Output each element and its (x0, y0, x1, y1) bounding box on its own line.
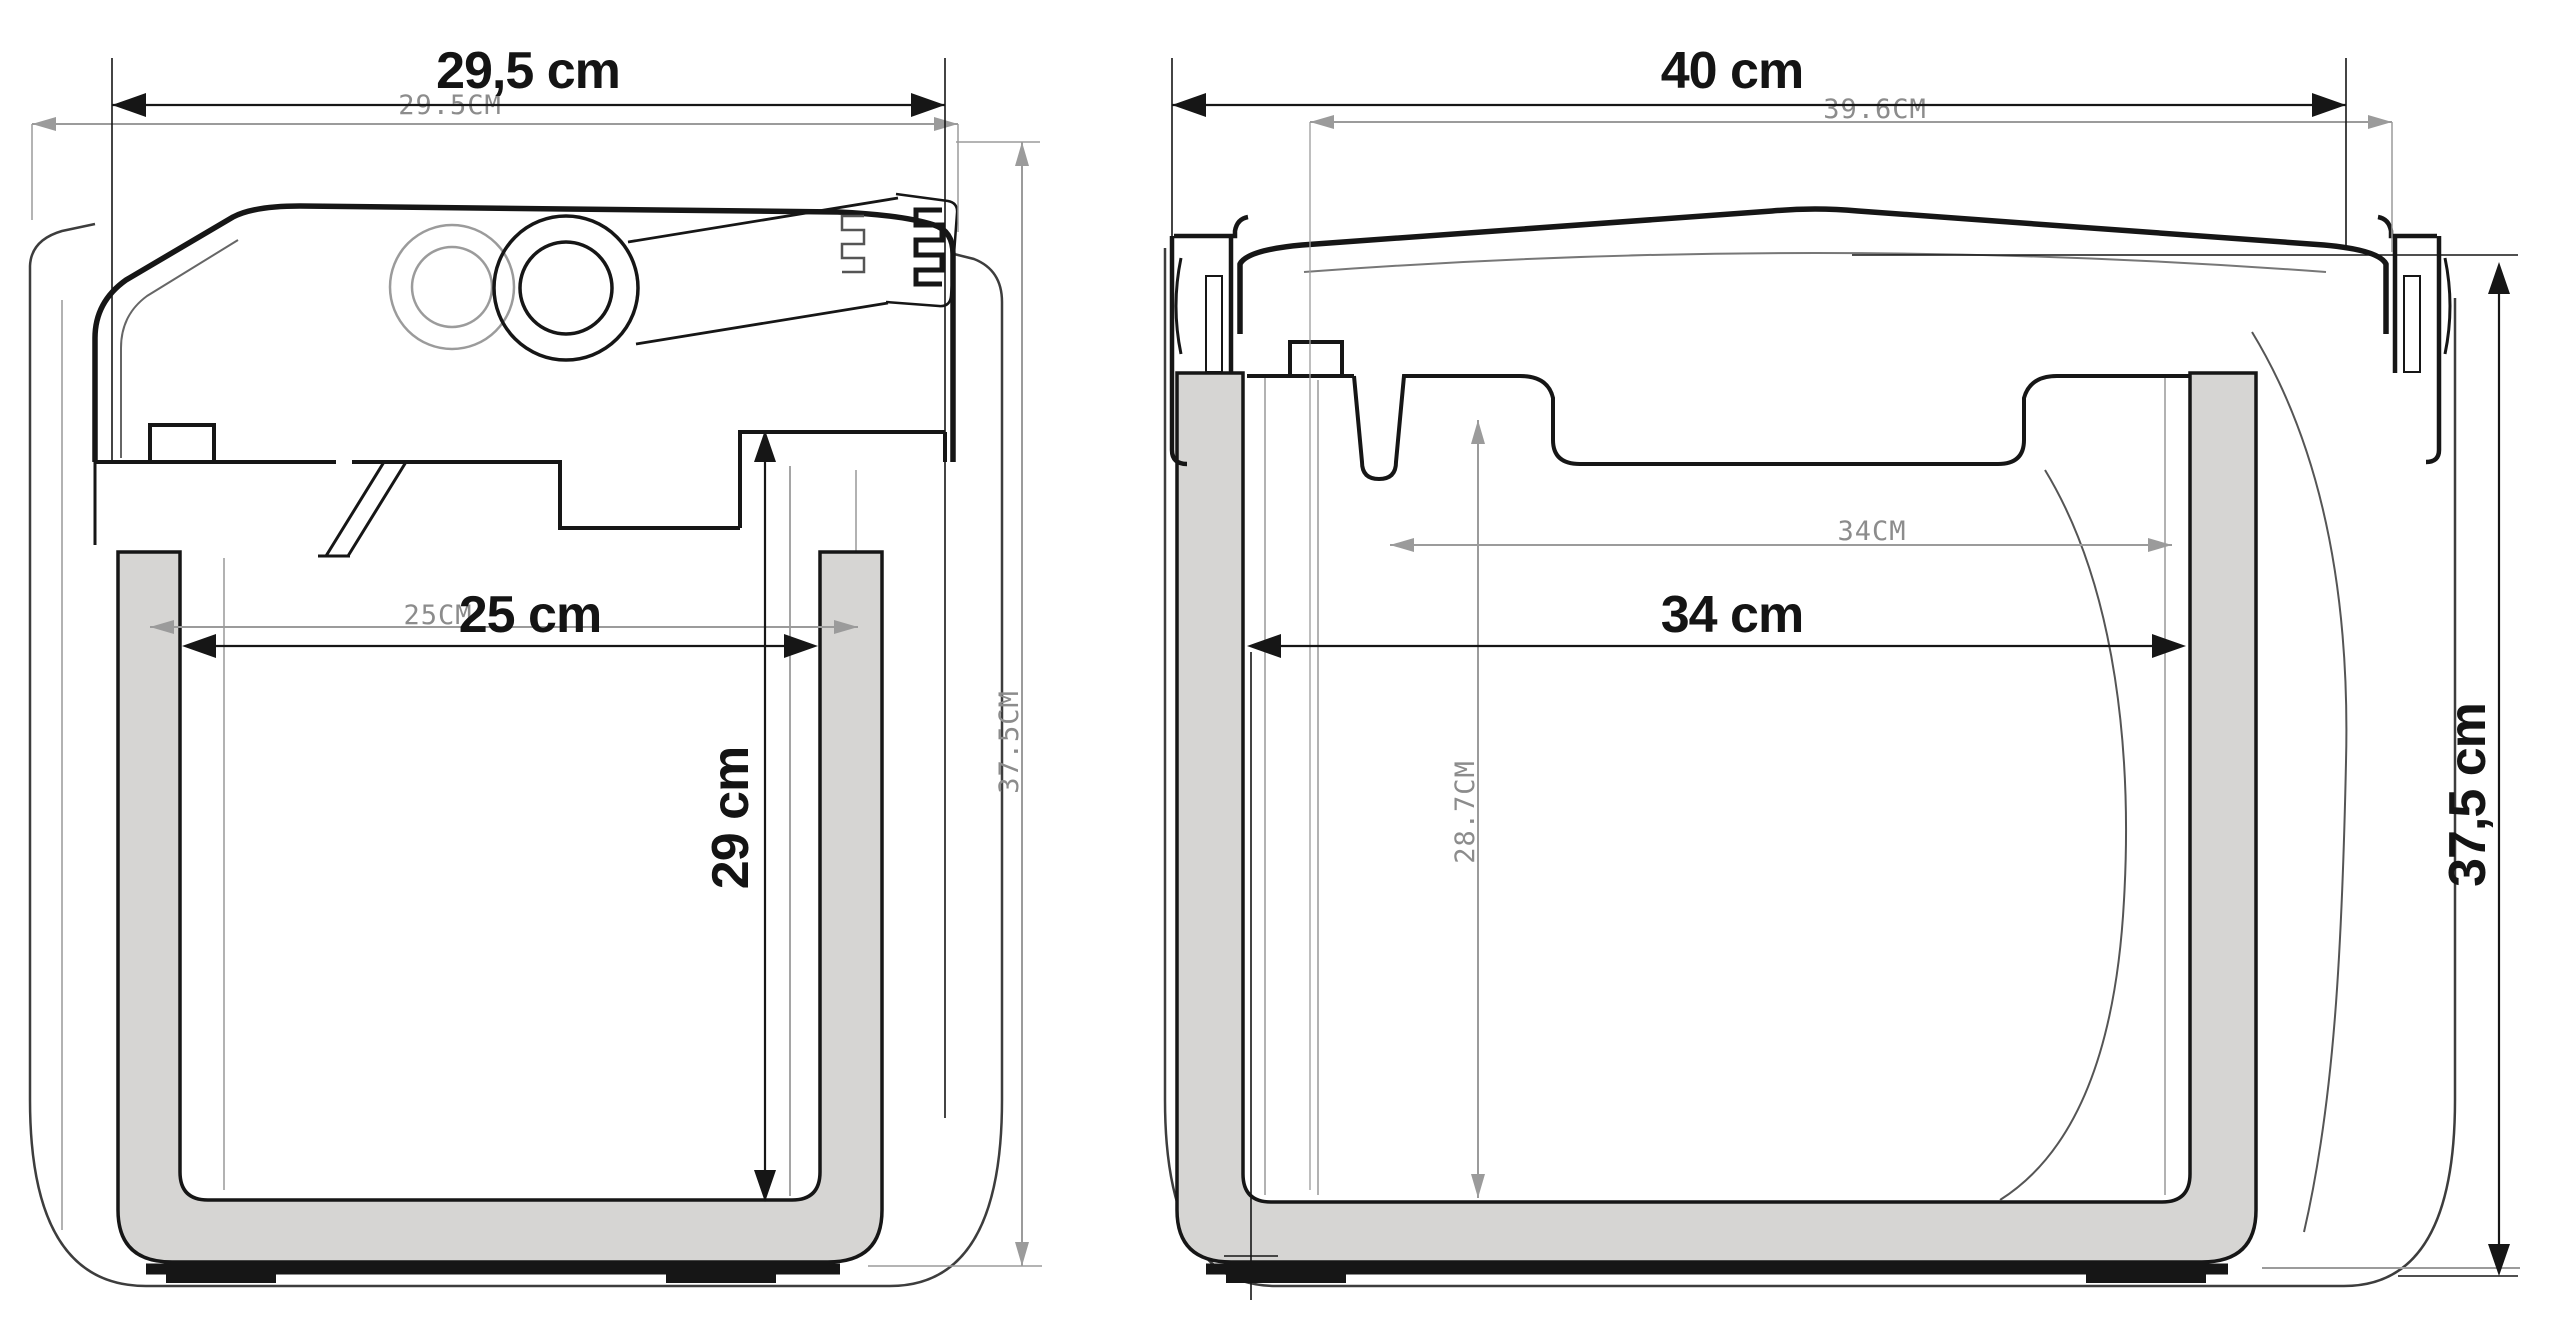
front-inner-height-arrow-top-icon (754, 430, 776, 462)
side-inner-width-arrow-left-icon (1247, 634, 1281, 658)
side-cad-dimensions: 39.6CM 34CM 28.7CM (1310, 94, 2520, 1268)
front-seam-line (95, 432, 945, 528)
front-cad-height-label: 37.5CM (994, 690, 1025, 794)
front-foot-left (166, 1274, 276, 1283)
front-seam-notch (318, 462, 406, 556)
side-view: 39.6CM 34CM 28.7CM 40 cm 34 cm 37,5 cm (1165, 42, 2520, 1300)
side-foot-left (1226, 1274, 1346, 1283)
side-dimensions: 40 cm 34 cm 37,5 cm (1172, 42, 2518, 1300)
front-lid (95, 194, 957, 462)
side-cad-width-arrow-left-icon (1310, 115, 1334, 129)
handle-grip-ribs-ghost-icon (842, 216, 864, 272)
front-cad-dimensions: 29.5CM 25CM 37.5CM (32, 90, 1042, 1266)
front-width-arrow-left-icon (112, 93, 146, 117)
front-lid-seam (95, 425, 945, 556)
front-cad-height-arrow-top-icon (1015, 142, 1029, 166)
front-width-arrow-right-icon (911, 93, 945, 117)
side-seam-line (1247, 376, 2190, 479)
side-height-label: 37,5 cm (2439, 703, 2497, 887)
front-tub-walls (118, 552, 882, 1262)
front-inner-width-label: 25 cm (459, 586, 601, 644)
front-inner-height-label: 29 cm (702, 747, 760, 889)
side-width-arrow-right-icon (2312, 93, 2346, 117)
handle-arm-top-edge (628, 198, 898, 242)
front-cad-width-arrow-left-icon (32, 117, 56, 131)
front-outer-silhouette-top-right (954, 254, 1002, 302)
cooler-dimension-diagram: 29.5CM 25CM 37.5CM 29,5 cm 25 cm 29 cm (0, 0, 2560, 1343)
side-lid-outline (1240, 209, 2386, 334)
side-tub-walls (1177, 373, 2256, 1262)
front-inner-width-arrow-right-icon (784, 634, 818, 658)
front-inner-width-arrow-left-icon (182, 634, 216, 658)
side-width-label: 40 cm (1661, 42, 1803, 100)
side-hinge-compartment-curve-outer (2252, 332, 2346, 1232)
side-latch-left-bar (1206, 276, 1222, 372)
side-seam-tab (1290, 342, 1342, 376)
side-foot-right (2086, 1274, 2206, 1283)
side-cad-inner-height-arrow-bottom-icon (1471, 1174, 1485, 1198)
side-cad-width-label: 39.6CM (1823, 94, 1927, 125)
cooler-dimension-diagram-page: 29.5CM 25CM 37.5CM 29,5 cm 25 cm 29 cm (0, 0, 2560, 1343)
side-latch-right-bar (2404, 276, 2420, 372)
side-cad-inner-height-arrow-top-icon (1471, 420, 1485, 444)
side-latch-left-arc (1176, 258, 1181, 354)
front-view: 29.5CM 25CM 37.5CM 29,5 cm 25 cm 29 cm (30, 42, 1042, 1286)
front-seam-tab (150, 425, 214, 462)
side-latch-right-arc (2445, 258, 2450, 354)
side-latch-right (2378, 217, 2450, 462)
side-inner-width-arrow-right-icon (2152, 634, 2186, 658)
front-lid-outline (95, 206, 953, 462)
side-cad-width-arrow-right-icon (2368, 115, 2392, 129)
side-height-arrow-top-icon (2488, 262, 2510, 294)
front-width-label: 29,5 cm (436, 42, 620, 100)
side-cad-inner-width-arrow-right-icon (2148, 538, 2172, 552)
handle-pivot-ring-outer (494, 216, 638, 360)
side-cad-inner-width-label: 34CM (1837, 516, 1906, 547)
handle-arm-bottom-edge (636, 303, 888, 344)
handle-ghost-ring-inner (412, 247, 492, 327)
front-inner-height-arrow-bottom-icon (754, 1170, 776, 1202)
side-lid-inner-line (1304, 253, 2326, 272)
front-cad-height-arrow-bottom-icon (1015, 1242, 1029, 1266)
front-outer-silhouette (30, 224, 95, 266)
side-cad-inner-width-arrow-left-icon (1390, 538, 1414, 552)
side-width-arrow-left-icon (1172, 93, 1206, 117)
side-hinge-compartment-curve-inner (2000, 470, 2126, 1200)
side-inner-width-label: 34 cm (1661, 586, 1803, 644)
side-height-arrow-bottom-icon (2488, 1244, 2510, 1276)
front-cad-width-arrow-right-icon (934, 117, 958, 131)
front-foot-right (666, 1274, 776, 1283)
side-cad-inner-height-label: 28.7CM (1450, 760, 1481, 864)
side-latch-right-outline (2378, 217, 2439, 462)
handle-pivot-ring-inner (520, 242, 612, 334)
